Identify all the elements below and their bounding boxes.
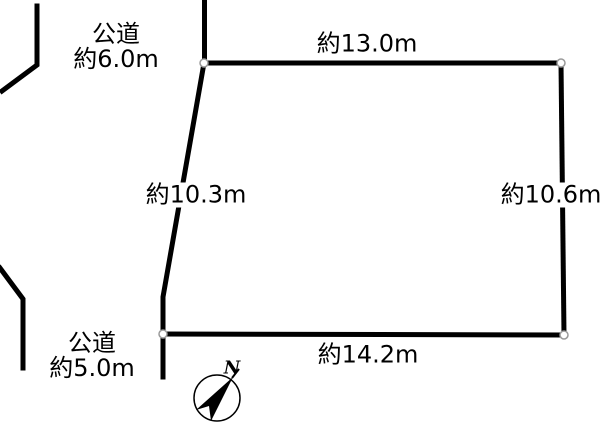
plot-edge-bottom: [163, 334, 564, 335]
road-label-top-left: 公道 約6.0m: [71, 22, 161, 72]
corner-marker-top-right: [557, 59, 565, 67]
edge-length-label-left: 約10.3m: [144, 183, 249, 208]
land-plot-diagram: 公道 約6.0m 公道 約5.0m 約13.0m 約10.6m 約14.2m 約…: [0, 0, 600, 425]
compass-north-label: N: [224, 358, 240, 379]
road-far-edge-top-left: [2, 6, 37, 91]
road-name-top-left: 公道: [73, 22, 159, 47]
road-far-edge-bottom-left: [0, 268, 23, 368]
road-width-top-left: 約6.0m: [73, 47, 159, 72]
edge-length-label-bottom: 約14.2m: [316, 343, 421, 368]
plot-edge-left: [163, 63, 204, 377]
edge-length-label-right: 約10.6m: [499, 183, 600, 208]
road-name-bottom-left: 公道: [49, 331, 135, 356]
edge-length-label-top: 約13.0m: [315, 32, 420, 57]
corner-marker-bottom-right: [560, 331, 568, 339]
road-label-bottom-left: 公道 約5.0m: [47, 331, 137, 381]
corner-marker-top-left: [200, 59, 208, 67]
road-width-bottom-left: 約5.0m: [49, 356, 135, 381]
corner-marker-bottom-left: [159, 330, 167, 338]
